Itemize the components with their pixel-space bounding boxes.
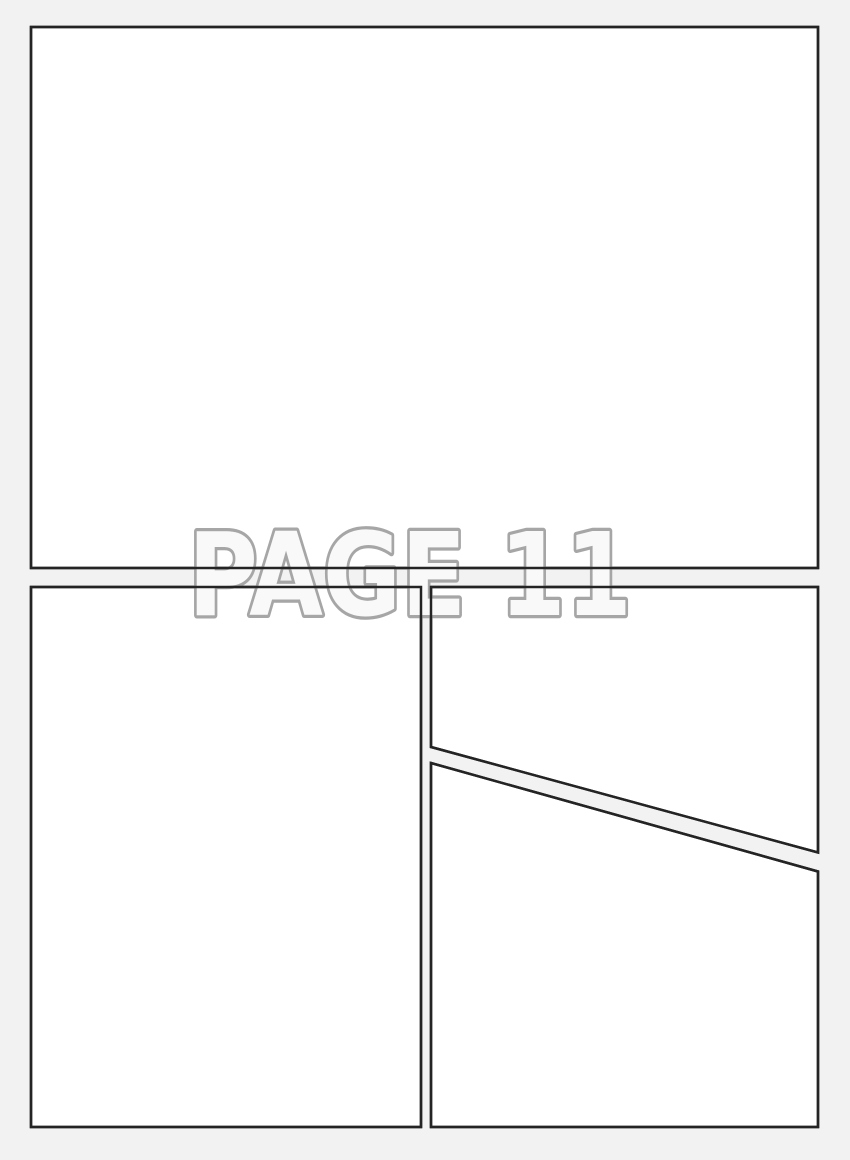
panel-top — [31, 27, 818, 568]
page-number-label: PAGE 11 — [188, 509, 632, 643]
comic-page-canvas: PAGE 11 — [0, 0, 850, 1160]
comic-page-template: PAGE 11 — [0, 0, 850, 1160]
panel-bottom-left — [31, 587, 421, 1127]
